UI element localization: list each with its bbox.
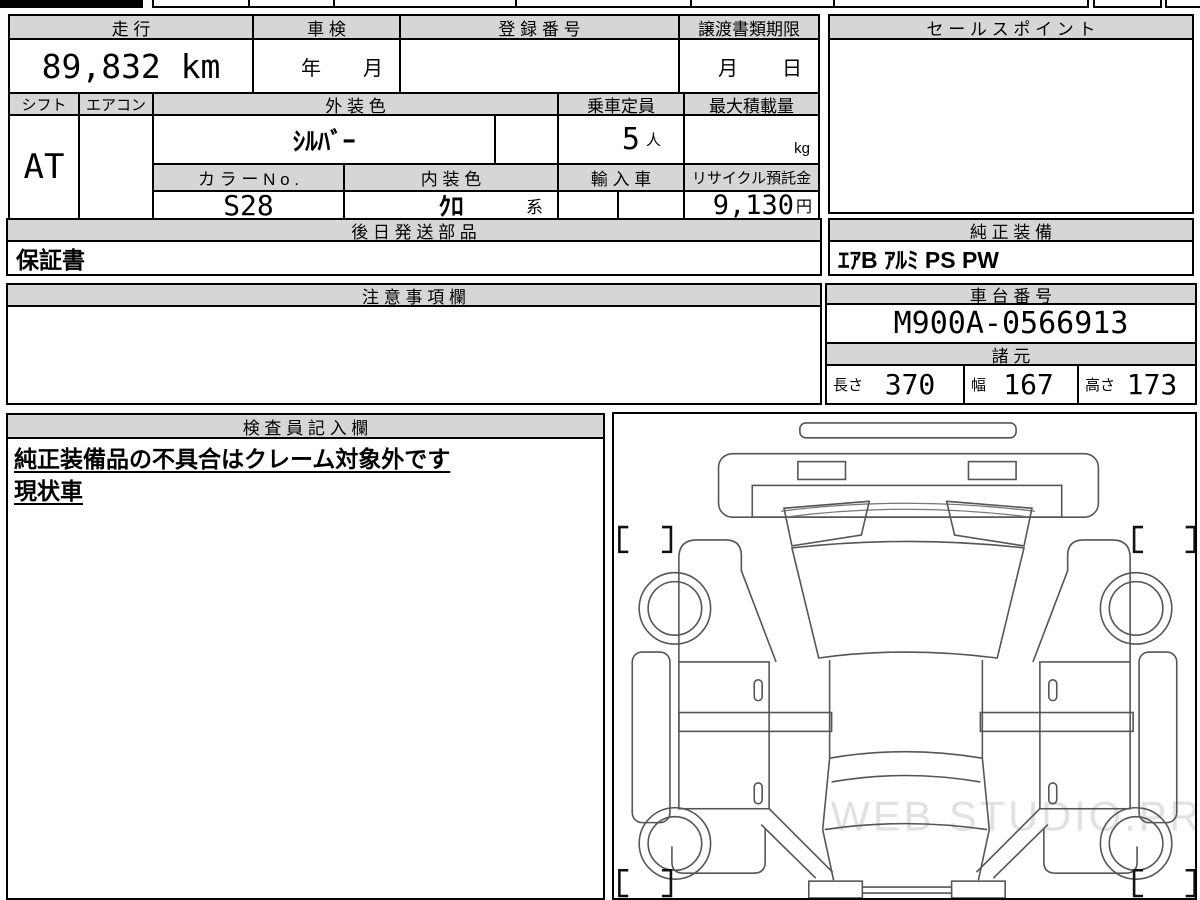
rear-floor-left (823, 758, 830, 829)
windshield-left (784, 501, 869, 546)
shift-value: AT (8, 114, 80, 220)
transfer-docs-header: 譲渡書類期限 (678, 14, 820, 40)
inspection-value: 年 月 (252, 38, 401, 94)
capacity-value: 5 人 (557, 114, 685, 165)
rear-floor-arc-1 (832, 776, 981, 782)
front-inner-panel (752, 485, 1061, 517)
car-diagram-box: WEB STUDIO.PRO (612, 412, 1197, 900)
cropped-cell (248, 0, 335, 8)
wheel-front-left-inner (648, 582, 702, 636)
later-parts-value: 保証書 (6, 240, 822, 276)
cowl-arc-1 (781, 503, 1035, 511)
spec-length-label: 長さ (833, 374, 863, 395)
registration-header: 登 録 番 号 (399, 14, 680, 40)
spec-height-label: 高さ (1085, 374, 1115, 395)
car-underbody-diagram: WEB STUDIO.PRO (614, 414, 1195, 898)
inspection-header: 車 検 (252, 14, 401, 40)
recycle-deposit-unit: 円 (796, 193, 812, 217)
specs-header: 諸 元 (825, 342, 1197, 366)
cropped-cell (515, 0, 692, 8)
import-car-value2-empty (617, 190, 685, 220)
cross-member-left (679, 713, 832, 732)
bracket-top-right-open (1134, 527, 1143, 552)
bracket-bottom-right-close (1186, 870, 1195, 896)
spec-width-cell: 幅 167 (963, 364, 1079, 405)
inspection-year-label: 年 (301, 52, 321, 81)
recycle-deposit-value: 9,130 円 (683, 190, 820, 220)
bracket-bottom-right-open (1134, 870, 1143, 896)
interior-color-value: ｸﾛ 系 (343, 190, 559, 220)
chassis-value: M900A-0566913 (825, 303, 1197, 344)
aircon-value-empty (78, 114, 154, 220)
transfer-month-label: 月 (718, 52, 738, 81)
spec-height-cell: 高さ 173 (1077, 364, 1197, 405)
mileage-header: 走 行 (8, 14, 254, 40)
cropped-cell (1093, 0, 1162, 8)
front-grille-strip (800, 423, 1016, 438)
exterior-color-value: ｼﾙﾊﾞｰ (152, 114, 496, 165)
wheel-front-left-outer (639, 573, 710, 644)
notes-body (6, 305, 822, 405)
spec-width-value: 167 (986, 368, 1071, 401)
spec-height-value: 173 (1115, 368, 1189, 401)
quarter-panel-left (761, 809, 832, 878)
bracket-top-left-open (619, 527, 628, 552)
bracket-bottom-left-open (619, 870, 628, 896)
transfer-day-label: 日 (782, 52, 802, 81)
inspector-body: 純正装備品の不具合はクレーム対象外です 現状車 (6, 437, 605, 900)
cropped-cell (333, 0, 517, 8)
sales-point-body (828, 38, 1194, 214)
inspector-line1: 純正装備品の不具合はクレーム対象外です (14, 443, 450, 475)
rear-bumper-left (809, 881, 863, 898)
cropped-cell (833, 0, 1089, 8)
front-bracket-left (798, 462, 846, 480)
genuine-equipment-header: 純 正 装 備 (828, 218, 1194, 242)
door-handle-right-1 (1049, 680, 1057, 701)
bracket-bottom-left-close (662, 870, 671, 896)
rear-bumper-bar (862, 887, 951, 893)
interior-color-suffix: 系 (526, 193, 543, 218)
import-car-value-empty (557, 190, 619, 220)
hood-floor-pan (792, 541, 1024, 658)
door-handle-left-2 (754, 783, 762, 804)
color-no-value: S28 (152, 190, 345, 220)
door-panel-right (1040, 662, 1130, 809)
bracket-top-right-close (1186, 527, 1195, 552)
notes-header: 注 意 事 項 欄 (6, 283, 822, 307)
door-handle-left-1 (754, 680, 762, 701)
aircon-header: エアコン (78, 92, 154, 116)
rear-fender-left (672, 829, 765, 874)
wheel-rear-left-outer (639, 808, 710, 879)
cropped-cell (1165, 0, 1200, 8)
genuine-equipment-value: ｴｱB ｱﾙﾐ PS PW (828, 240, 1194, 276)
capacity-unit: 人 (646, 129, 661, 150)
bracket-top-left-close (662, 527, 671, 552)
max-load-header: 最大積載量 (683, 92, 820, 116)
chassis-header: 車 台 番 号 (825, 283, 1197, 305)
auction-sheet: 走 行 車 検 登 録 番 号 譲渡書類期限 89,832 km 年 月 月 日… (0, 0, 1200, 900)
max-load-value: kg (683, 114, 820, 165)
front-section (679, 423, 1130, 662)
wheel-front-right-inner (1109, 582, 1163, 636)
recycle-deposit-header: リサイクル預託金 (683, 163, 820, 192)
inspector-line2: 現状車 (14, 475, 83, 507)
fender-front-left (679, 540, 776, 662)
exterior-color-header: 外 装 色 (152, 92, 559, 116)
fender-front-right (1033, 540, 1130, 662)
cowl-arc-2 (785, 509, 1031, 517)
rear-bumper-right (952, 881, 1006, 898)
wheel-rear-left-inner (648, 817, 702, 871)
corner-brackets (619, 527, 1194, 896)
recycle-deposit-number: 9,130 (713, 190, 794, 221)
door-panel-left (679, 662, 769, 809)
side-sill-left (632, 652, 670, 823)
inspector-header: 検 査 員 記 入 欄 (6, 413, 605, 439)
import-car-header: 輸 入 車 (557, 163, 685, 192)
sales-point-header: セ ー ル ス ポ イ ン ト (828, 14, 1194, 40)
mileage-value: 89,832 km (8, 38, 254, 94)
wheel-front-right-outer (1100, 573, 1171, 644)
spec-length-cell: 長さ 370 (825, 364, 965, 405)
windshield-right (947, 501, 1032, 546)
capacity-header: 乗車定員 (557, 92, 685, 116)
inspection-month-label: 月 (363, 52, 383, 81)
front-bracket-right (968, 462, 1016, 480)
registration-value-empty (399, 38, 680, 94)
seat-arc (830, 752, 983, 758)
cropped-cell (152, 0, 250, 8)
shift-header: シフト (8, 92, 80, 116)
exterior-color-sub-empty (494, 114, 559, 165)
cross-member-right (980, 713, 1133, 732)
spec-width-label: 幅 (971, 374, 986, 395)
spec-length-value: 370 (863, 368, 957, 401)
capacity-number: 5 (622, 122, 640, 157)
cropped-cell (690, 0, 835, 8)
cropped-black-cell (0, 0, 143, 8)
transfer-docs-value: 月 日 (678, 38, 820, 94)
later-parts-header: 後 日 発 送 部 品 (6, 218, 822, 242)
